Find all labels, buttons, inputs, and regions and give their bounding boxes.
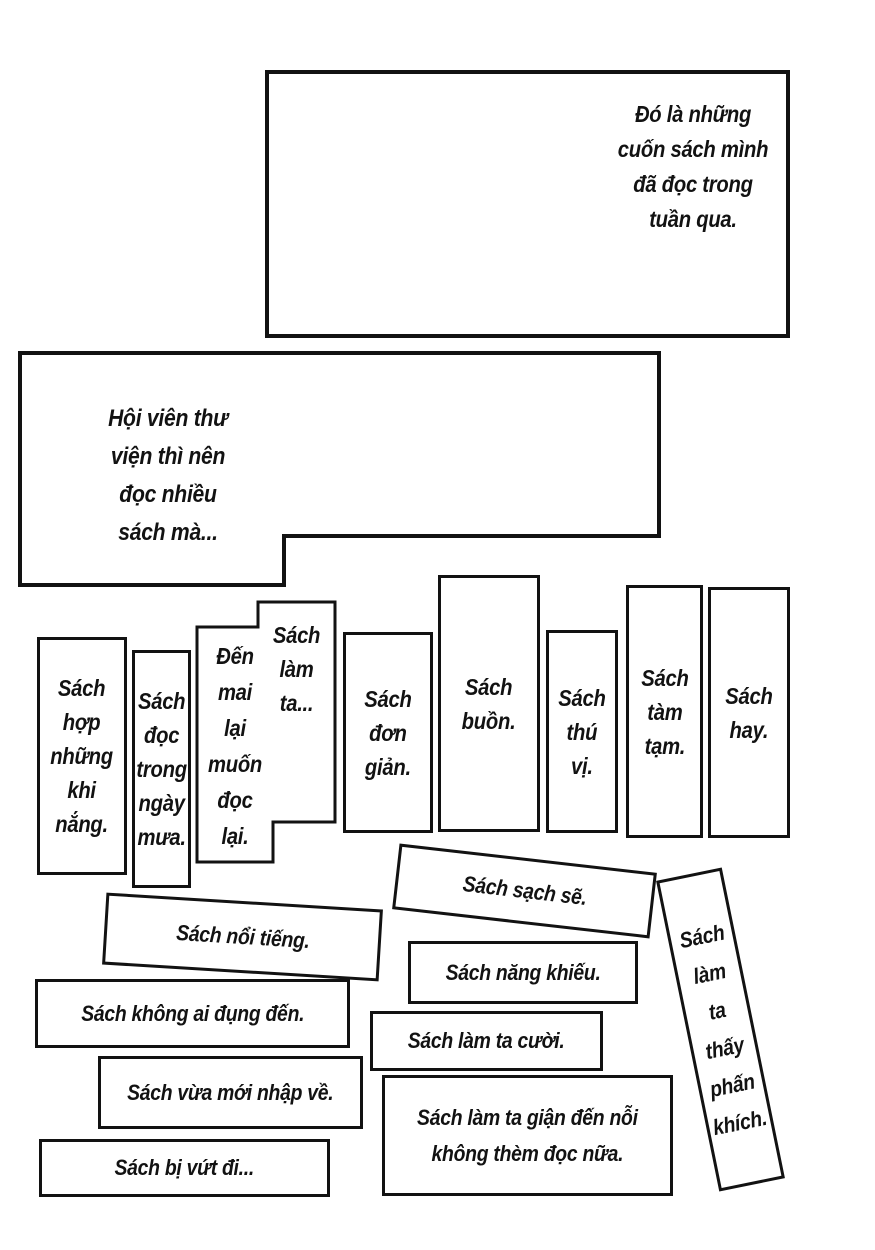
book-label-text: Sách làm ta cười. bbox=[408, 1026, 565, 1056]
book-label-talent: Sách năng khiếu. bbox=[408, 941, 638, 1004]
book-spine-text-read-again: Đến mai lại muốn đọc lại. bbox=[202, 638, 269, 854]
book-spine-sunny: Sách hợp những khi nắng. bbox=[37, 637, 127, 875]
book-spine-text: Sách buồn. bbox=[462, 670, 516, 738]
book-label-text: Sách làm ta giận đến nỗi không thèm đọc … bbox=[417, 1100, 638, 1172]
book-label-text: Sách sạch sẽ. bbox=[461, 869, 588, 913]
book-label-text: Sách không ai đụng đến. bbox=[81, 999, 304, 1029]
book-spine-simple: Sách đơn giản. bbox=[343, 632, 433, 833]
book-label-laugh: Sách làm ta cười. bbox=[370, 1011, 603, 1071]
book-label-clean: Sách sạch sẽ. bbox=[392, 844, 657, 939]
book-spine-text-makes-us: Sách làm ta... bbox=[263, 618, 331, 720]
book-spine-text: Sách thú vị. bbox=[558, 681, 605, 783]
narration-text-left: Hội viên thư viện thì nên đọc nhiều sách… bbox=[80, 400, 256, 552]
book-label-text: Sách nổi tiếng. bbox=[175, 918, 310, 956]
book-label-text: Sách năng khiếu. bbox=[445, 958, 600, 988]
book-spine-text: Sách đơn giản. bbox=[364, 682, 411, 784]
book-spine-sad: Sách buồn. bbox=[438, 575, 540, 832]
book-spine-text: Sách tàm tạm. bbox=[641, 661, 688, 763]
book-spine-rainy: Sách đọc trong ngày mưa. bbox=[132, 650, 191, 888]
book-label-excited: Sách làm ta thấy phấn khích. bbox=[656, 868, 785, 1192]
book-label-new-arrival: Sách vừa mới nhập về. bbox=[98, 1056, 363, 1129]
book-label-text: Sách vừa mới nhập về. bbox=[127, 1078, 333, 1108]
book-spine-text: Sách hay. bbox=[725, 679, 772, 747]
book-label-text: Sách làm ta thấy phấn khích. bbox=[671, 912, 770, 1146]
book-label-untouched: Sách không ai đụng đến. bbox=[35, 979, 350, 1048]
book-label-famous: Sách nổi tiếng. bbox=[102, 893, 383, 982]
comic-page: Đó là những cuốn sách mình đã đọc trong … bbox=[0, 0, 875, 1250]
book-spine-text: Sách đọc trong ngày mưa. bbox=[136, 684, 186, 854]
book-label-text: Sách bị vứt đi... bbox=[115, 1153, 255, 1183]
book-label-angry: Sách làm ta giận đến nỗi không thèm đọc … bbox=[382, 1075, 673, 1196]
book-label-thrown-away: Sách bị vứt đi... bbox=[39, 1139, 330, 1197]
book-spine-text: Sách hợp những khi nắng. bbox=[51, 671, 114, 841]
book-spine-good: Sách hay. bbox=[708, 587, 790, 838]
book-spine-interesting: Sách thú vị. bbox=[546, 630, 618, 833]
book-spine-soso: Sách tàm tạm. bbox=[626, 585, 703, 838]
narration-text-top: Đó là những cuốn sách mình đã đọc trong … bbox=[609, 97, 776, 237]
